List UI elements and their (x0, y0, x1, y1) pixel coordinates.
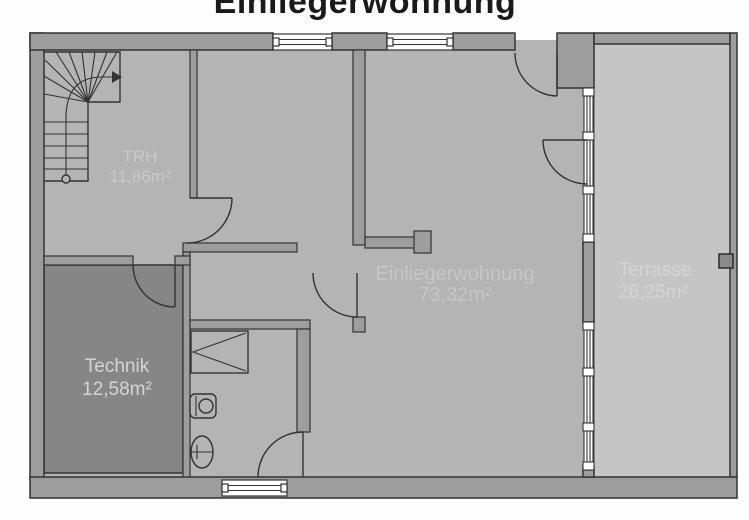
wall-bottom (30, 477, 737, 498)
wall-trh-right (190, 50, 197, 198)
einliegerwohnung-name: Einliegerwohnung (375, 263, 534, 285)
washbasin-symbol (190, 394, 216, 418)
terrace-edge-marker (719, 254, 733, 268)
terrasse-name: Terrasse (619, 260, 692, 281)
wc-symbol (191, 436, 213, 468)
window-top-2 (387, 34, 453, 50)
terrasse-area: 26,25m² (618, 282, 688, 303)
wall-top-1 (30, 33, 273, 50)
wall-left (30, 33, 44, 479)
wall-technik-top-2 (175, 256, 190, 265)
technik-area: 12,58m² (82, 379, 152, 400)
wall-corner-block (557, 33, 594, 88)
wall-top-3 (453, 33, 515, 50)
wall-terrace-top (594, 33, 730, 44)
room-terrasse-label: Terrasse 26,25m² (618, 260, 691, 303)
stair-start-marker (62, 175, 70, 183)
shower-symbol (191, 331, 248, 373)
trh-name: TRH (123, 147, 158, 166)
window-bottom (222, 480, 287, 496)
wall-bath-left (183, 252, 190, 477)
window-top-1 (273, 34, 332, 50)
wall-top-2 (332, 33, 387, 50)
floor-plan-svg: TRH 11,86m² Technik 12,58m² Einliegerwoh… (0, 0, 749, 520)
floor-plan-page: Einliegerwohnung (0, 0, 749, 520)
trh-area: 11,86m² (109, 167, 170, 186)
wall-midroom-right (353, 50, 365, 245)
wall-bath-top (190, 320, 310, 329)
technik-name: Technik (85, 356, 150, 377)
wall-right-mid (583, 242, 594, 322)
wall-stub (365, 237, 415, 248)
wall-bath-right (297, 329, 310, 432)
wall-door-stub (353, 317, 365, 332)
einliegerwohnung-area: 73,32m² (418, 284, 492, 306)
wall-technik-top-1 (44, 256, 133, 265)
wall-stub-cap (414, 231, 431, 253)
wall-corridor-top (183, 243, 297, 252)
